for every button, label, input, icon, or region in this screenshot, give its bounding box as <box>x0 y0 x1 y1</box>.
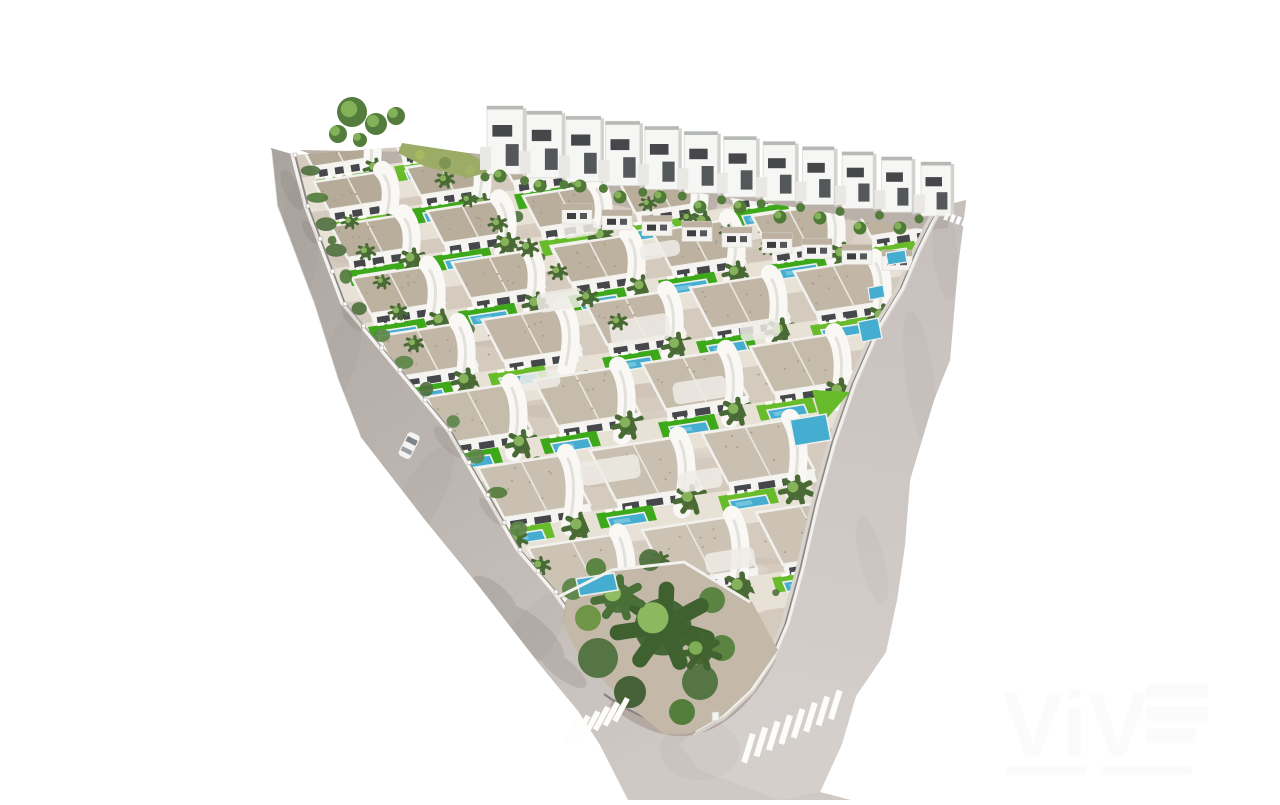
svg-text:ViV: ViV <box>1002 674 1149 776</box>
